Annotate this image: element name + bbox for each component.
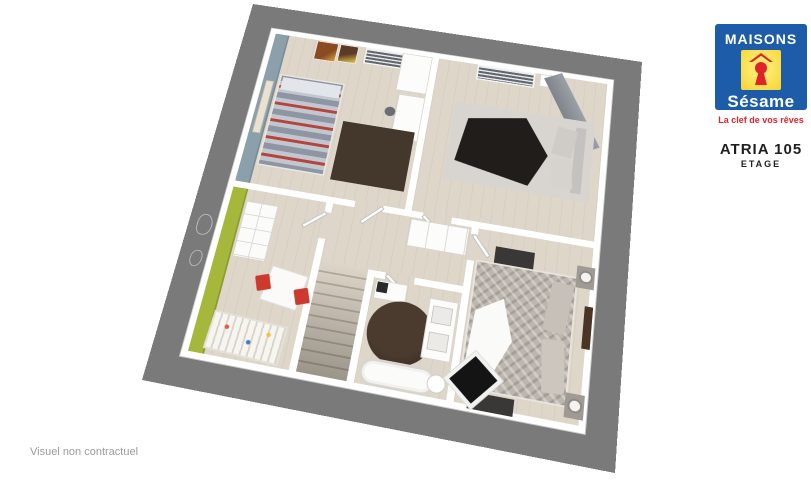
- kids-chair-red-2: [293, 288, 309, 306]
- logo-yellow-square: [741, 50, 781, 90]
- plan-model-title: ATRIA 105: [702, 141, 811, 158]
- brand-tagline: La clef de vos rêves: [702, 115, 811, 125]
- pillow-b-bedroom-2: [551, 159, 572, 189]
- sink-1: [431, 305, 454, 326]
- nightstand-2: [563, 392, 584, 420]
- poster-1: [314, 41, 338, 61]
- rug-bedroom-1: [330, 121, 415, 192]
- keyhole-stem: [755, 71, 767, 85]
- lamp-2: [569, 400, 581, 412]
- disclaimer-note: Visuel non contractuel: [30, 446, 138, 458]
- frame-decal-2: [188, 249, 205, 267]
- roof-icon: [749, 53, 773, 62]
- logo-text-sesame: Sésame: [715, 92, 807, 112]
- poster-2: [338, 45, 359, 63]
- logo-maisons-sesame: MAISONS Sésame: [715, 24, 807, 110]
- page: MAISONS Sésame La clef de vos rêves ATRI…: [0, 0, 811, 480]
- floorplan-3d-view: [142, 4, 642, 473]
- master-pillow-2: [541, 339, 564, 395]
- plan-level-subtitle: ETAGE: [702, 159, 811, 169]
- master-pillow-1: [542, 281, 574, 336]
- wardrobe-bedroom-1: [396, 53, 433, 95]
- brand-column: MAISONS Sésame La clef de vos rêves ATRI…: [702, 24, 811, 169]
- nightstand-1: [575, 265, 595, 290]
- floorplan-interior: [179, 28, 614, 435]
- frame-decal-1: [194, 213, 215, 236]
- bathtub-basin: [363, 362, 431, 391]
- bathroom-hatch: [376, 281, 389, 293]
- logo-text-maisons: MAISONS: [715, 24, 807, 47]
- kids-chair-red-1: [255, 274, 271, 291]
- sink-2: [426, 331, 449, 353]
- lamp-1: [581, 272, 592, 283]
